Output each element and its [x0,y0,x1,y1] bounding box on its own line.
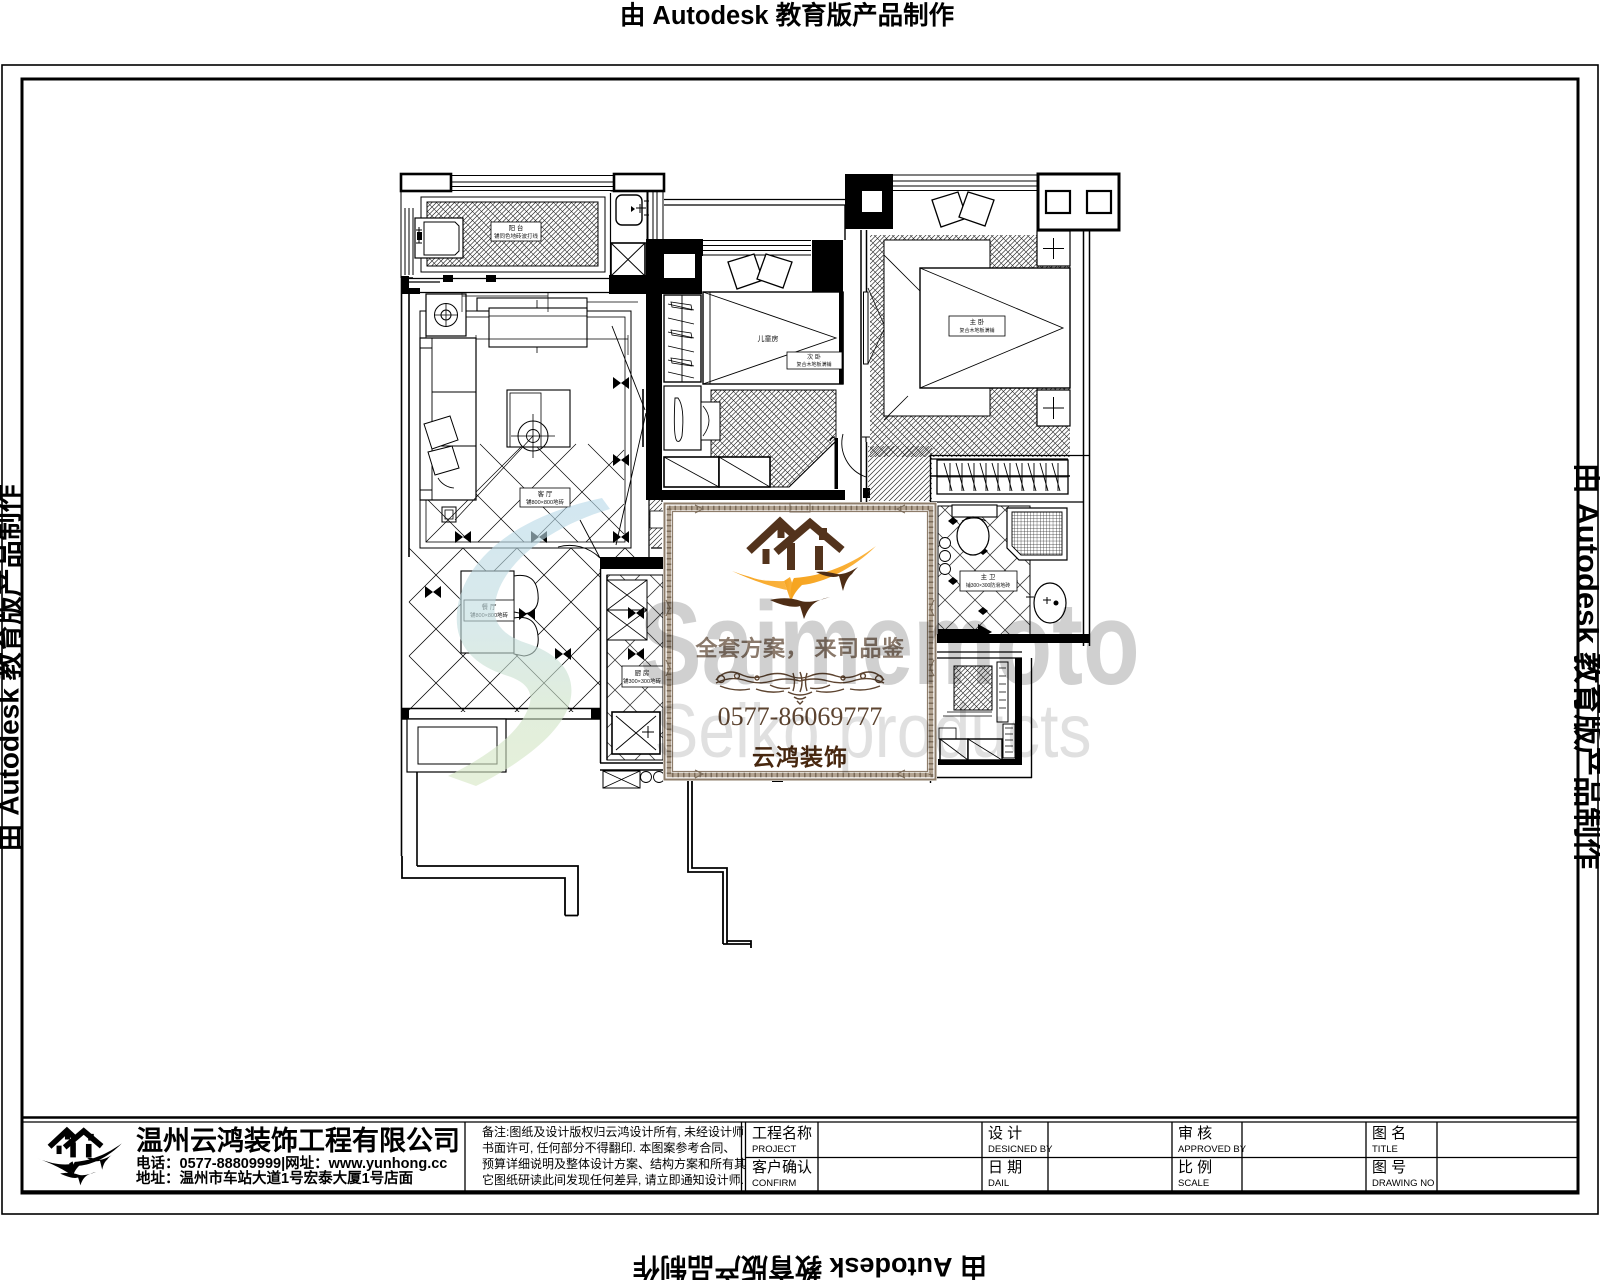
svg-text:电话：0577-88809999|网址：www.yunhon: 电话：0577-88809999|网址：www.yunhong.cc [136,1154,447,1172]
svg-text:温州云鸿装饰工程有限公司: 温州云鸿装饰工程有限公司 [136,1126,460,1156]
svg-text:比 例: 比 例 [1178,1159,1212,1176]
svg-text:CONFIRM: CONFIRM [752,1178,796,1189]
svg-text:客户确认: 客户确认 [752,1159,812,1176]
svg-text:预算详细说明及整体设计方案、结构方案和所有其: 预算详细说明及整体设计方案、结构方案和所有其 [482,1156,746,1171]
svg-text:由 Autodesk 教育版产品制作: 由 Autodesk 教育版产品制作 [633,1252,987,1280]
svg-text:由 Autodesk 教育版产品制作: 由 Autodesk 教育版产品制作 [620,1,954,30]
svg-text:图 名: 图 名 [1372,1125,1406,1142]
svg-text:审 核: 审 核 [1178,1125,1212,1142]
svg-text:次 卧: 次 卧 [807,353,821,361]
svg-text:地址：温州市车站大道1号宏泰大厦1号店面: 地址：温州市车站大道1号宏泰大厦1号店面 [136,1169,413,1187]
svg-text:主 卧: 主 卧 [970,317,985,326]
svg-text:复合木地板满铺: 复合木地板满铺 [796,361,831,368]
svg-text:DRAWING NO: DRAWING NO [1372,1178,1434,1189]
svg-text:DESICNED BY: DESICNED BY [988,1144,1053,1155]
svg-text:阳 台: 阳 台 [509,223,524,232]
svg-text:图 号: 图 号 [1372,1159,1406,1176]
svg-text:备注:图纸及设计版权归云鸿设计所有, 未经设计师: 备注:图纸及设计版权归云鸿设计所有, 未经设计师 [482,1124,744,1139]
svg-text:Seiko products: Seiko products [654,690,1091,774]
svg-text:PROJECT: PROJECT [752,1144,797,1155]
svg-text:复合木地板满铺: 复合木地板满铺 [959,327,994,334]
svg-text:儿童房: 儿童房 [758,334,779,343]
svg-text:TITLE: TITLE [1372,1144,1398,1155]
svg-text:书面许可, 任何部分不得翻印. 本图案参考合同、: 书面许可, 任何部分不得翻印. 本图案参考合同、 [482,1140,735,1155]
svg-text:DAIL: DAIL [988,1178,1009,1189]
svg-text:由 Autodesk 教育版产品制作: 由 Autodesk 教育版产品制作 [1570,463,1600,869]
svg-text:APPROVED BY: APPROVED BY [1178,1144,1247,1155]
svg-text:客 厅: 客 厅 [538,489,553,498]
svg-text:铺同色地砖波打线: 铺同色地砖波打线 [494,232,539,240]
svg-text:设 计: 设 计 [988,1125,1022,1142]
svg-text:它图纸研读此间发现任何差异, 请立即通知设计师.: 它图纸研读此间发现任何差异, 请立即通知设计师. [482,1172,744,1187]
svg-text:工程名称: 工程名称 [752,1125,812,1142]
svg-text:SCALE: SCALE [1178,1178,1209,1189]
svg-text:日 期: 日 期 [988,1159,1022,1176]
svg-text:铺800×800地砖: 铺800×800地砖 [526,498,565,506]
